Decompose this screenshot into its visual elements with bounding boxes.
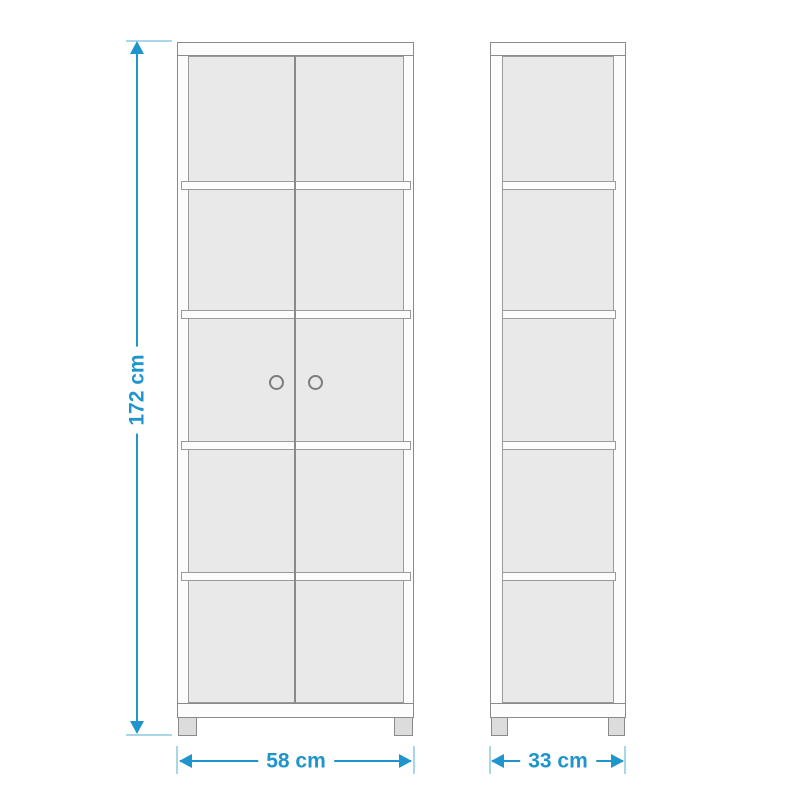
arrow-up-icon: [130, 41, 144, 54]
shelf-divider: [181, 181, 411, 190]
shelf-divider: [502, 310, 616, 319]
arrow-left-icon: [491, 754, 504, 768]
top-panel: [491, 43, 625, 56]
depth-extension-line-right: [624, 746, 626, 774]
side-foot-left: [491, 718, 508, 736]
shelf-divider: [181, 572, 411, 581]
shelf-divider: [502, 181, 616, 190]
arrow-left-icon: [179, 754, 192, 768]
shelf-divider: [502, 572, 616, 581]
bottom-panel: [491, 703, 625, 717]
side-view: [490, 42, 626, 718]
depth-dimension-label: 33 cm: [520, 748, 596, 775]
front-door-area: [188, 56, 404, 703]
arrow-right-icon: [399, 754, 412, 768]
shelf-divider: [181, 441, 411, 450]
arrow-right-icon: [611, 754, 624, 768]
front-foot-left: [178, 718, 197, 736]
height-extension-line-bottom: [126, 734, 172, 736]
shelf-divider: [181, 310, 411, 319]
width-dimension-label: 58 cm: [258, 748, 334, 775]
top-panel: [178, 43, 413, 56]
height-dimension-label: 172 cm: [124, 346, 151, 433]
dimension-drawing: 172 cm 58 cm 33 cm: [0, 0, 800, 800]
front-foot-right: [394, 718, 413, 736]
width-extension-line-right: [413, 746, 415, 774]
bottom-panel: [178, 703, 413, 717]
shelf-divider: [502, 441, 616, 450]
door-gap-line: [294, 56, 296, 703]
front-view: [177, 42, 414, 718]
width-extension-line-left: [176, 746, 178, 774]
door-knob-right: [308, 375, 323, 390]
side-foot-right: [608, 718, 625, 736]
door-knob-left: [269, 375, 284, 390]
side-panel-area: [502, 56, 614, 703]
arrow-down-icon: [130, 721, 144, 734]
